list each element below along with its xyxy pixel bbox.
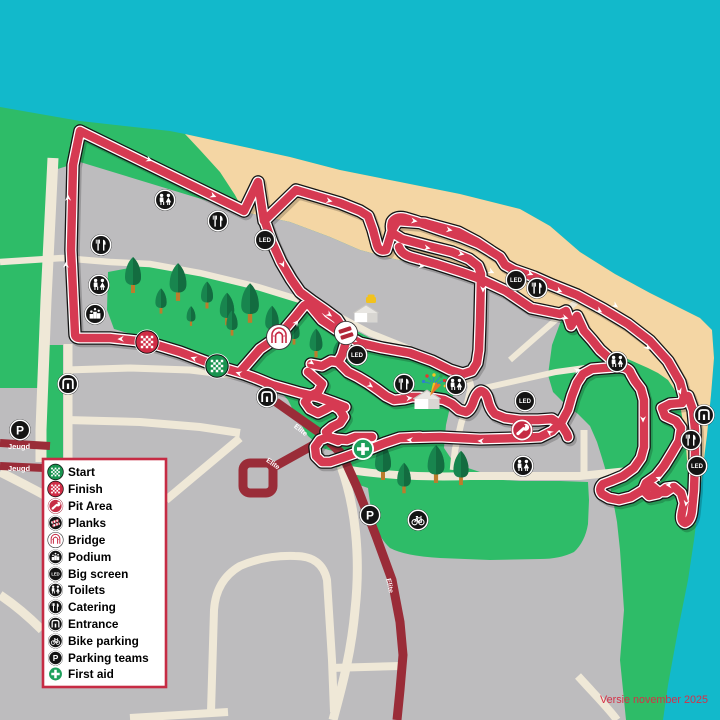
svg-text:Toilets: Toilets: [68, 583, 106, 597]
svg-text:Jeugd: Jeugd: [8, 464, 31, 473]
svg-text:Catering: Catering: [68, 600, 116, 614]
svg-text:Entrance: Entrance: [68, 617, 119, 631]
svg-text:Start: Start: [68, 465, 95, 479]
svg-text:Jeugd: Jeugd: [8, 442, 31, 451]
svg-text:Big screen: Big screen: [68, 567, 128, 581]
svg-text:First aid: First aid: [68, 667, 114, 681]
svg-text:Pit Area: Pit Area: [68, 499, 113, 513]
svg-text:Versie november 2025: Versie november 2025: [600, 694, 708, 706]
svg-text:Parking teams: Parking teams: [68, 651, 149, 665]
svg-text:Bridge: Bridge: [68, 533, 106, 547]
svg-text:Planks: Planks: [68, 516, 106, 530]
svg-text:Finish: Finish: [68, 482, 103, 496]
svg-text:Podium: Podium: [68, 550, 111, 564]
svg-text:Bike parking: Bike parking: [68, 634, 139, 648]
